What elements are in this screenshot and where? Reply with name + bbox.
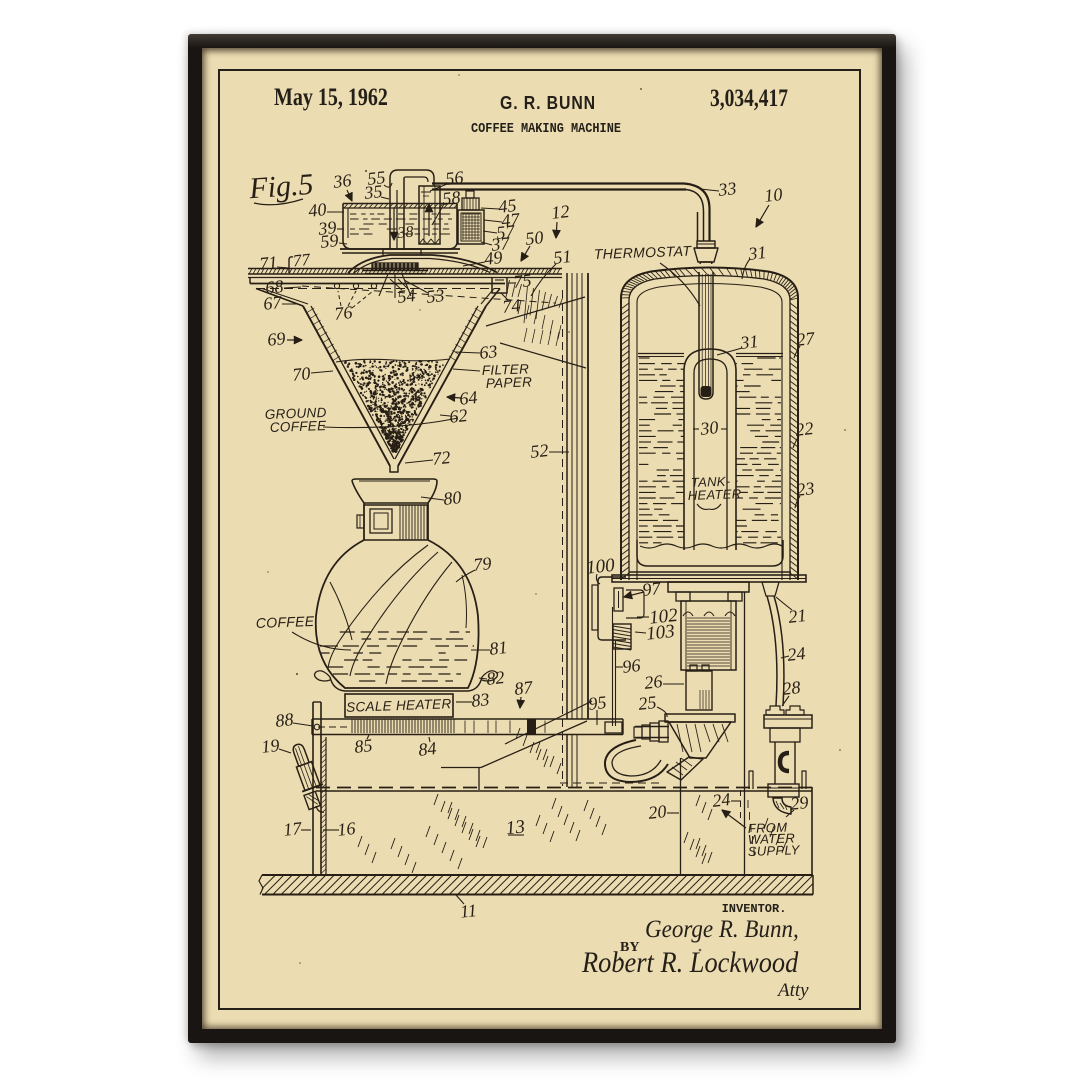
svg-text:97: 97	[641, 578, 662, 600]
svg-text:70: 70	[291, 363, 311, 385]
svg-text:100: 100	[585, 555, 616, 579]
svg-text:74: 74	[501, 295, 521, 317]
svg-text:16: 16	[336, 818, 356, 840]
svg-text:25: 25	[637, 692, 657, 714]
svg-text:HEATER: HEATER	[688, 486, 742, 503]
svg-text:30: 30	[698, 417, 719, 439]
svg-text:24: 24	[786, 643, 806, 665]
svg-text:13: 13	[505, 816, 526, 839]
svg-text:24: 24	[711, 789, 731, 811]
svg-text:71: 71	[258, 252, 278, 274]
svg-text:49: 49	[483, 247, 503, 269]
svg-text:81: 81	[488, 637, 508, 659]
svg-text:84: 84	[417, 738, 437, 760]
svg-text:33: 33	[716, 178, 737, 200]
svg-text:10: 10	[763, 184, 783, 206]
svg-text:77: 77	[292, 250, 312, 271]
svg-text:29: 29	[789, 792, 809, 814]
svg-text:96: 96	[621, 655, 641, 677]
svg-text:80: 80	[442, 487, 462, 509]
svg-text:59: 59	[319, 230, 339, 252]
svg-text:62: 62	[448, 405, 468, 427]
svg-text:COFFEE: COFFEE	[270, 418, 328, 435]
svg-text:88: 88	[274, 709, 294, 731]
svg-text:82: 82	[485, 667, 505, 689]
svg-text:36: 36	[331, 170, 352, 192]
svg-text:63: 63	[478, 341, 498, 363]
svg-text:THERMOSTAT: THERMOSTAT	[594, 243, 693, 262]
svg-text:53: 53	[425, 285, 445, 307]
svg-text:17: 17	[282, 818, 303, 840]
svg-text:85: 85	[353, 735, 373, 757]
svg-text:22: 22	[794, 418, 814, 440]
svg-text:28: 28	[781, 677, 801, 699]
svg-text:12: 12	[550, 201, 570, 223]
svg-text:50: 50	[524, 227, 544, 249]
svg-text:56: 56	[444, 167, 464, 189]
svg-text:76: 76	[333, 302, 353, 324]
svg-text:54: 54	[396, 285, 416, 307]
svg-text:COFFEE: COFFEE	[256, 613, 315, 631]
svg-text:35: 35	[362, 181, 383, 203]
svg-text:26: 26	[643, 671, 663, 693]
svg-text:83: 83	[470, 689, 490, 711]
svg-text:20: 20	[647, 801, 667, 823]
svg-text:69: 69	[266, 328, 286, 350]
svg-text:23: 23	[795, 478, 815, 500]
svg-text:79: 79	[472, 553, 492, 575]
svg-text:38: 38	[396, 224, 415, 243]
svg-text:67: 67	[262, 292, 283, 314]
svg-text:31: 31	[746, 242, 767, 264]
svg-text:87: 87	[513, 677, 534, 699]
svg-text:SCALE HEATER: SCALE HEATER	[346, 696, 452, 715]
svg-text:103: 103	[645, 621, 676, 645]
svg-text:27: 27	[795, 328, 816, 350]
svg-text:72: 72	[431, 447, 451, 469]
svg-text:52: 52	[529, 440, 549, 462]
svg-text:SUPPLY: SUPPLY	[748, 842, 801, 859]
svg-text:58: 58	[441, 187, 461, 209]
svg-text:PAPER: PAPER	[486, 374, 533, 391]
svg-text:Fig.5: Fig.5	[247, 168, 314, 205]
svg-text:31: 31	[738, 331, 759, 353]
svg-text:11: 11	[459, 900, 478, 922]
svg-text:75: 75	[512, 270, 532, 292]
svg-text:19: 19	[260, 735, 280, 757]
